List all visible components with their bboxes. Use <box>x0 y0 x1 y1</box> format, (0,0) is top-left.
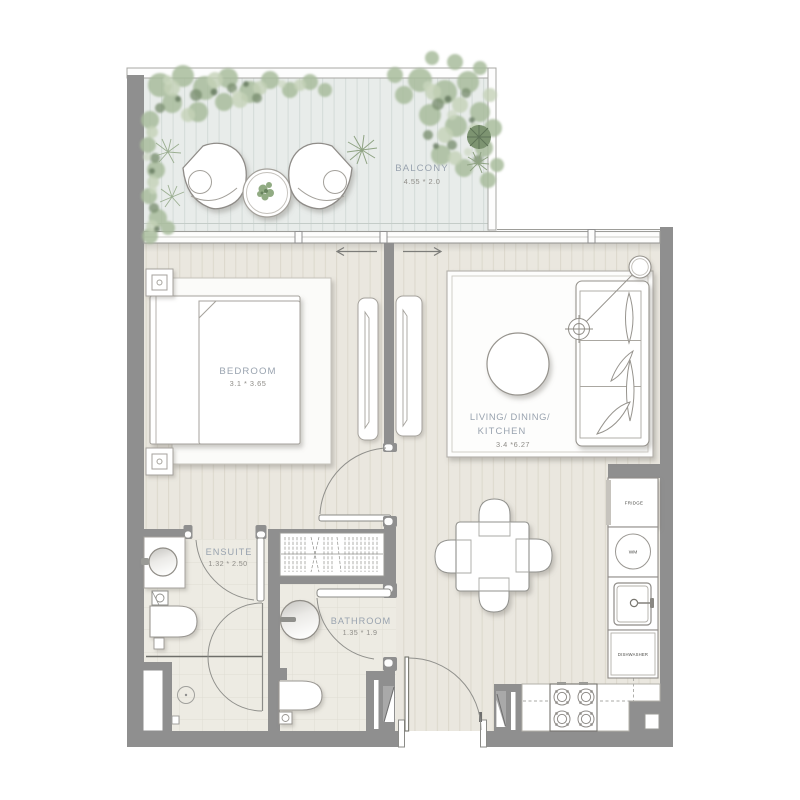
svg-text:BATHROOM: BATHROOM <box>331 616 391 626</box>
svg-text:BEDROOM: BEDROOM <box>219 366 276 377</box>
svg-text:4.55 * 2.0: 4.55 * 2.0 <box>404 177 441 186</box>
svg-text:1.32 * 2.50: 1.32 * 2.50 <box>208 559 247 568</box>
svg-text:KITCHEN: KITCHEN <box>478 425 527 436</box>
svg-text:ENSUITE: ENSUITE <box>206 547 253 557</box>
svg-text:3.4 *6.27: 3.4 *6.27 <box>496 440 530 449</box>
svg-text:3.1 * 3.65: 3.1 * 3.65 <box>230 379 267 388</box>
svg-text:1.35 * 1.9: 1.35 * 1.9 <box>343 628 378 637</box>
svg-text:WM: WM <box>629 550 638 556</box>
svg-text:FRIDGE: FRIDGE <box>625 501 643 506</box>
svg-text:LIVING/ DINING/: LIVING/ DINING/ <box>470 411 550 422</box>
svg-text:DISHWASHER: DISHWASHER <box>618 652 648 657</box>
svg-text:BALCONY: BALCONY <box>395 163 449 174</box>
